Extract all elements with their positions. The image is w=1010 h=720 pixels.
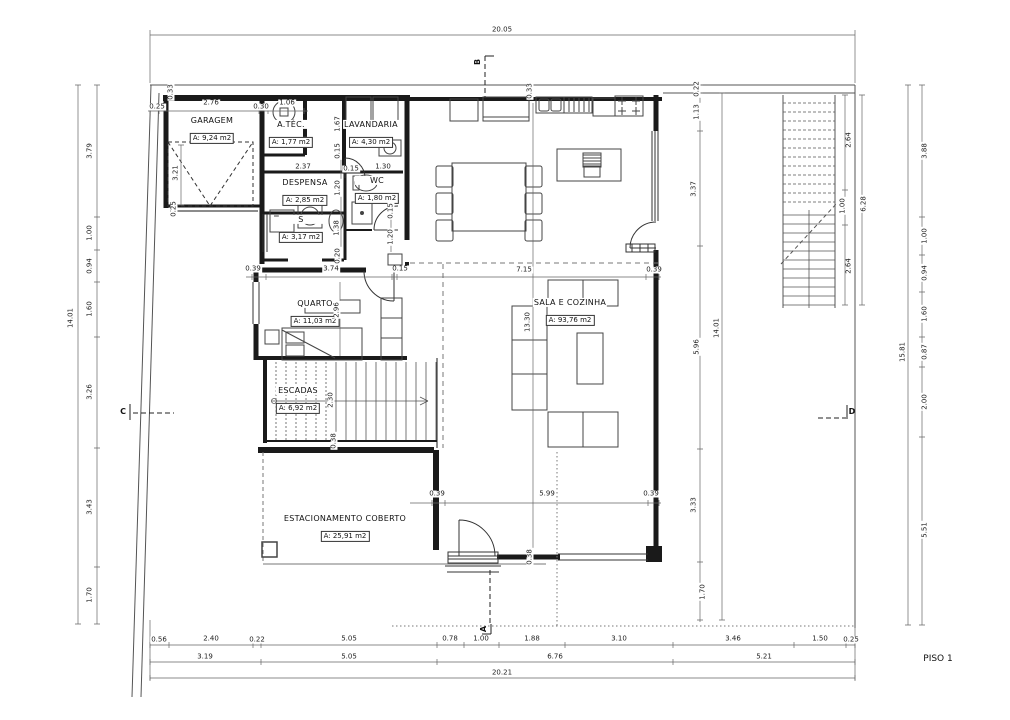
section-lines bbox=[130, 56, 847, 634]
kitchen-island bbox=[557, 149, 621, 181]
floor-title: PISO 1 bbox=[923, 654, 952, 664]
corridor-door bbox=[345, 158, 365, 178]
boiler bbox=[273, 101, 295, 123]
chair bbox=[525, 193, 542, 214]
sofa-left bbox=[512, 306, 547, 410]
bed bbox=[282, 328, 362, 360]
plot-boundary bbox=[132, 85, 855, 697]
dresser bbox=[305, 300, 360, 313]
s-basin bbox=[301, 207, 319, 225]
stairs-external bbox=[781, 95, 837, 308]
wc-door bbox=[374, 206, 398, 230]
dimension-lines bbox=[75, 30, 925, 681]
chair bbox=[436, 220, 453, 241]
chair bbox=[436, 166, 453, 187]
windows bbox=[253, 131, 658, 560]
wc-toilet bbox=[355, 175, 377, 191]
entrance-threshold bbox=[448, 552, 498, 563]
chair bbox=[436, 193, 453, 214]
floor-plan-canvas: GARAGEMA: 9,24 m2A.TÉC.A: 1,77 m2LAVANDA… bbox=[0, 0, 1010, 720]
stairs-internal bbox=[272, 362, 437, 440]
chair bbox=[525, 220, 542, 241]
chair bbox=[525, 166, 542, 187]
hall-door bbox=[364, 271, 394, 301]
coffee-table bbox=[577, 333, 603, 384]
floor-plan-drawing bbox=[0, 0, 1010, 720]
entrance-door bbox=[459, 520, 495, 556]
dining-table bbox=[452, 163, 526, 231]
wardrobe bbox=[381, 298, 402, 360]
